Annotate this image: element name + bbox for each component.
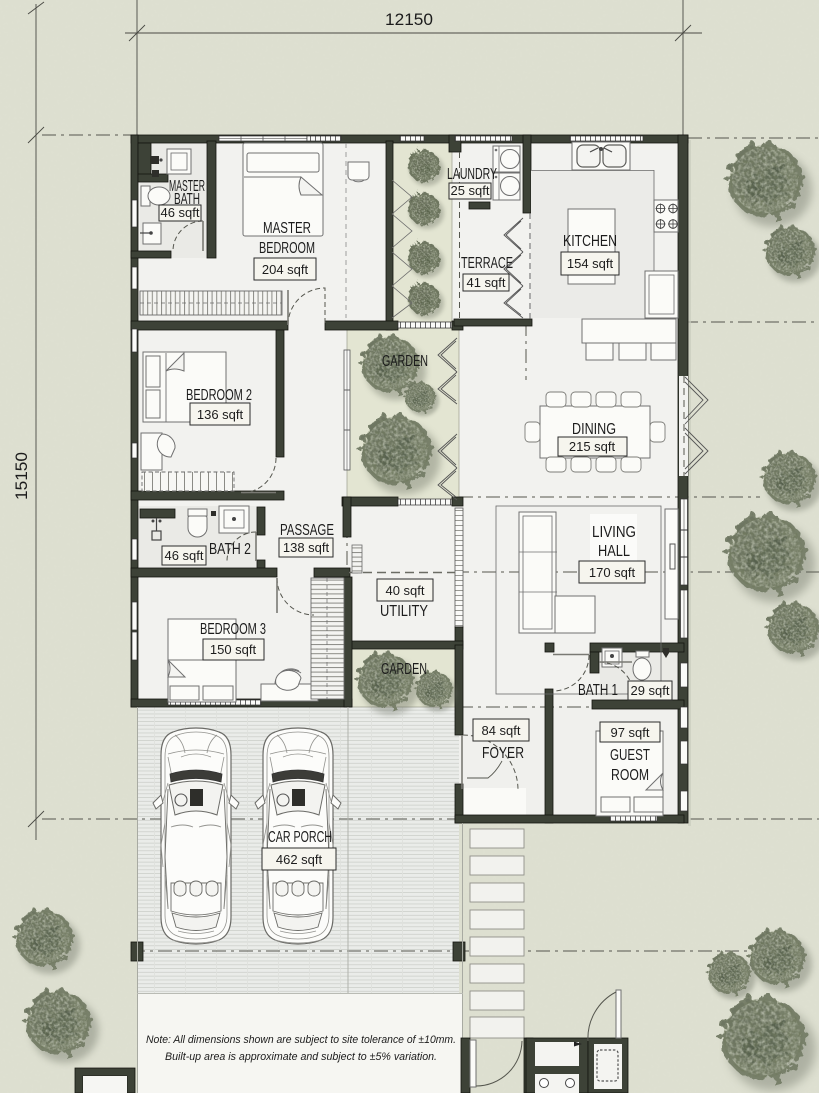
svg-text:ROOM: ROOM <box>611 767 649 784</box>
svg-text:MASTER: MASTER <box>263 220 311 237</box>
svg-text:40 sqft: 40 sqft <box>385 583 424 598</box>
svg-text:GUEST: GUEST <box>610 747 650 764</box>
svg-text:Built-up area is approximate a: Built-up area is approximate and subject… <box>165 1051 437 1063</box>
svg-text:84 sqft: 84 sqft <box>481 723 520 738</box>
svg-text:LAUNDRY: LAUNDRY <box>447 166 497 183</box>
svg-text:462 sqft: 462 sqft <box>276 852 323 867</box>
svg-text:15150: 15150 <box>12 452 31 500</box>
svg-text:HALL: HALL <box>598 543 630 560</box>
svg-text:215 sqft: 215 sqft <box>569 439 616 454</box>
svg-text:DINING: DINING <box>572 421 616 438</box>
svg-text:25 sqft: 25 sqft <box>450 183 489 198</box>
svg-text:PASSAGE: PASSAGE <box>280 522 334 539</box>
svg-text:GARDEN: GARDEN <box>381 661 427 678</box>
svg-text:GARDEN: GARDEN <box>382 353 428 370</box>
svg-text:154 sqft: 154 sqft <box>567 256 614 271</box>
svg-text:170 sqft: 170 sqft <box>589 565 636 580</box>
svg-text:29 sqft: 29 sqft <box>630 683 669 698</box>
svg-text:46 sqft: 46 sqft <box>160 205 199 220</box>
svg-text:136 sqft: 136 sqft <box>197 407 244 422</box>
svg-text:138 sqft: 138 sqft <box>283 540 330 555</box>
svg-text:KITCHEN: KITCHEN <box>563 233 617 250</box>
svg-text:46 sqft: 46 sqft <box>164 548 203 563</box>
svg-text:BEDROOM 2: BEDROOM 2 <box>186 387 252 404</box>
svg-text:97 sqft: 97 sqft <box>610 725 649 740</box>
svg-text:UTILITY: UTILITY <box>380 603 428 620</box>
svg-text:BATH 2: BATH 2 <box>209 541 251 558</box>
svg-text:BATH 1: BATH 1 <box>578 682 618 699</box>
svg-text:204 sqft: 204 sqft <box>262 262 309 277</box>
svg-text:12150: 12150 <box>385 10 433 29</box>
svg-text:BEDROOM: BEDROOM <box>259 240 315 257</box>
svg-text:150 sqft: 150 sqft <box>210 642 257 657</box>
svg-text:TERRACE: TERRACE <box>461 255 513 272</box>
svg-text:BEDROOM 3: BEDROOM 3 <box>200 621 266 638</box>
svg-text:41 sqft: 41 sqft <box>466 275 505 290</box>
svg-text:FOYER: FOYER <box>482 745 524 762</box>
svg-text:LIVING: LIVING <box>592 524 636 541</box>
svg-text:Note: All dimensions shown are: Note: All dimensions shown are subject t… <box>146 1034 456 1046</box>
svg-text:CAR PORCH: CAR PORCH <box>268 829 332 846</box>
